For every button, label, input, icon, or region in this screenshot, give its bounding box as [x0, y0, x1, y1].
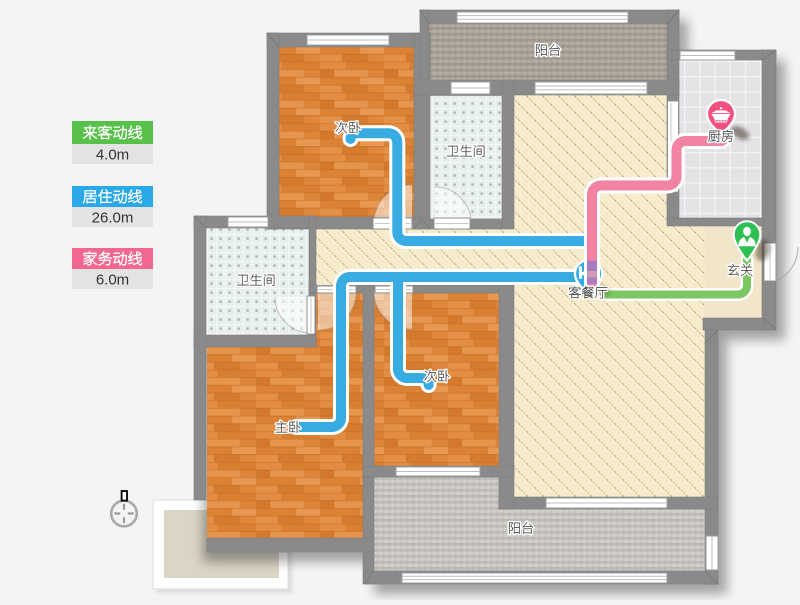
svg-text:4.0m: 4.0m: [96, 147, 129, 164]
svg-text:26.0m: 26.0m: [92, 210, 134, 227]
svg-text:6.0m: 6.0m: [96, 272, 129, 289]
